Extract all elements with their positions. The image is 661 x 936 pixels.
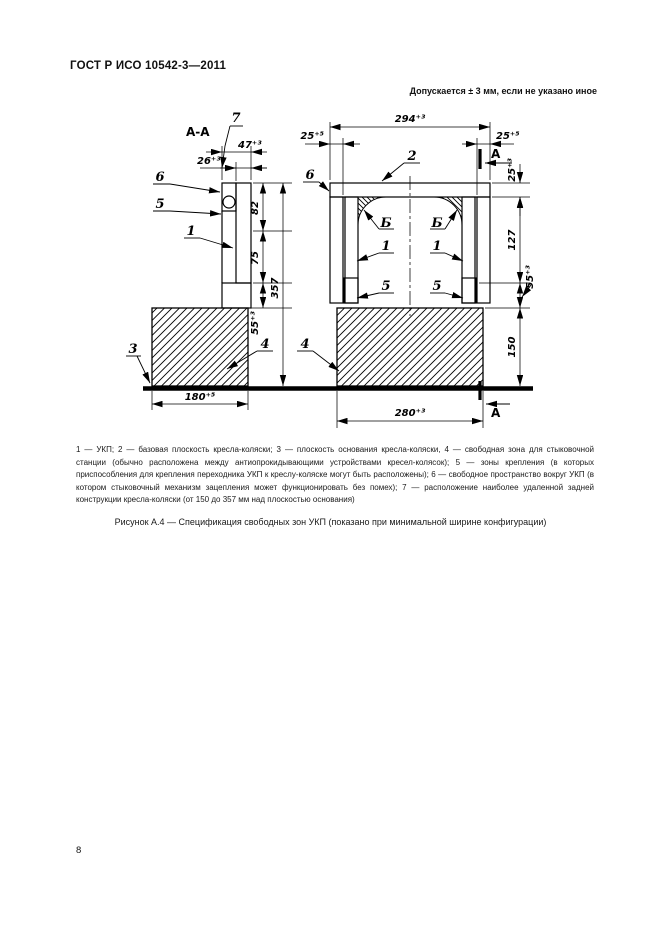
ucp-post [236, 183, 251, 283]
attachment-hole [223, 196, 235, 208]
attachment-zone-5-left [344, 278, 358, 303]
base-block-left-view [152, 308, 248, 386]
pos-label-1-front-left: 1 [381, 239, 390, 254]
dim-55-left: 55⁺³ [250, 311, 261, 335]
figure-legend: 1 — УКП; 2 — базовая плоскость кресла-ко… [76, 444, 594, 507]
pos-label-4-right: 4 [300, 337, 309, 352]
right-inner-wall [462, 197, 475, 303]
dim-357: 357 [270, 278, 281, 299]
section-cut-label-top: А [491, 147, 501, 161]
dim-plate-thickness: 25⁺³ [507, 158, 518, 182]
pos-label-4-left: 4 [260, 337, 269, 352]
dim-base-width-right: 280⁺³ [395, 408, 426, 419]
section-view-label: А-А [186, 125, 210, 139]
dim-75: 75 [250, 251, 261, 265]
base-block-front-view [337, 308, 483, 386]
section-view-aa: 47⁺³ 26⁺³ 82 75 55⁺³ 357 180⁺⁵ А-А 7 [126, 111, 339, 410]
pos-label-5-front-right: 5 [432, 279, 441, 294]
pos-label-3: 3 [128, 342, 137, 357]
pos-label-6-left: 6 [155, 170, 164, 185]
pos-label-5-front-left: 5 [381, 279, 390, 294]
pos-label-6-right: 6 [305, 168, 314, 183]
right-outer-wall [477, 197, 490, 303]
page-number: 8 [76, 845, 81, 856]
dim-base-width-left: 180⁺⁵ [185, 392, 216, 403]
pos-label-1-left: 1 [186, 224, 195, 239]
dim-127: 127 [507, 230, 518, 251]
pos-label-7: 7 [231, 111, 240, 126]
dim-wall-right: 25⁺⁵ [496, 131, 520, 142]
pos-label-2: 2 [406, 149, 416, 164]
document-page: ГОСТ Р ИСО 10542-3—2011 Допускается ± 3 … [0, 0, 661, 936]
dim-post-width: 26⁺³ [197, 156, 221, 167]
front-view: 294⁺³ 25⁺⁵ 25⁺⁵ А 25⁺³ 127 [300, 114, 536, 428]
attachment-zone-5-right [462, 278, 476, 303]
section-cut-label-bottom: А [491, 406, 501, 420]
dim-82: 82 [250, 201, 261, 215]
pos-label-1-front-right: 1 [432, 239, 441, 254]
dim-150: 150 [507, 337, 518, 358]
dim-overall-width: 294⁺³ [395, 114, 426, 125]
left-outer-wall [330, 197, 343, 303]
left-inner-wall [345, 197, 358, 303]
attachment-zone-left-view [222, 283, 251, 308]
dim-wall-left: 25⁺⁵ [300, 131, 324, 142]
figure-title: Рисунок А.4 — Спецификация свободных зон… [60, 517, 601, 527]
dim-post-top: 47⁺³ [237, 140, 262, 151]
pos-label-5-left: 5 [155, 197, 164, 212]
